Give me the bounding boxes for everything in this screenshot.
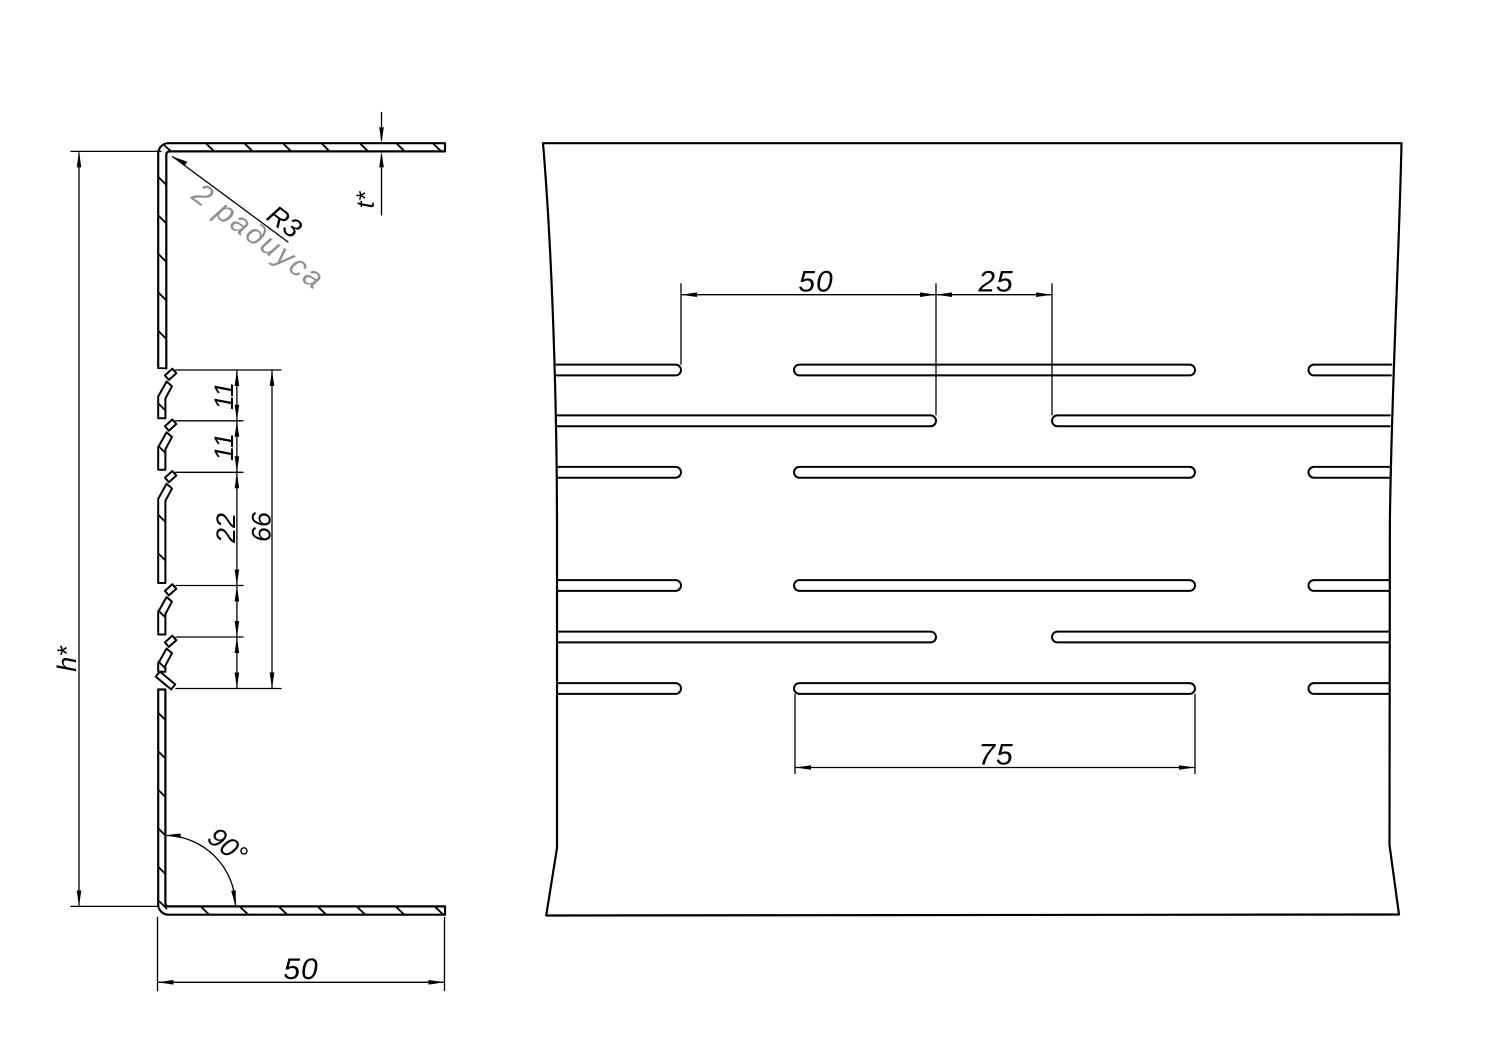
svg-text:11: 11 xyxy=(209,433,239,461)
svg-text:50: 50 xyxy=(283,953,318,986)
svg-text:75: 75 xyxy=(978,738,1013,771)
svg-text:50: 50 xyxy=(798,266,833,299)
svg-text:22: 22 xyxy=(211,513,241,544)
svg-text:25: 25 xyxy=(977,266,1013,299)
svg-text:11: 11 xyxy=(209,382,239,410)
svg-text:h*: h* xyxy=(52,645,82,672)
svg-text:t*: t* xyxy=(352,190,380,208)
svg-text:66: 66 xyxy=(247,511,277,542)
